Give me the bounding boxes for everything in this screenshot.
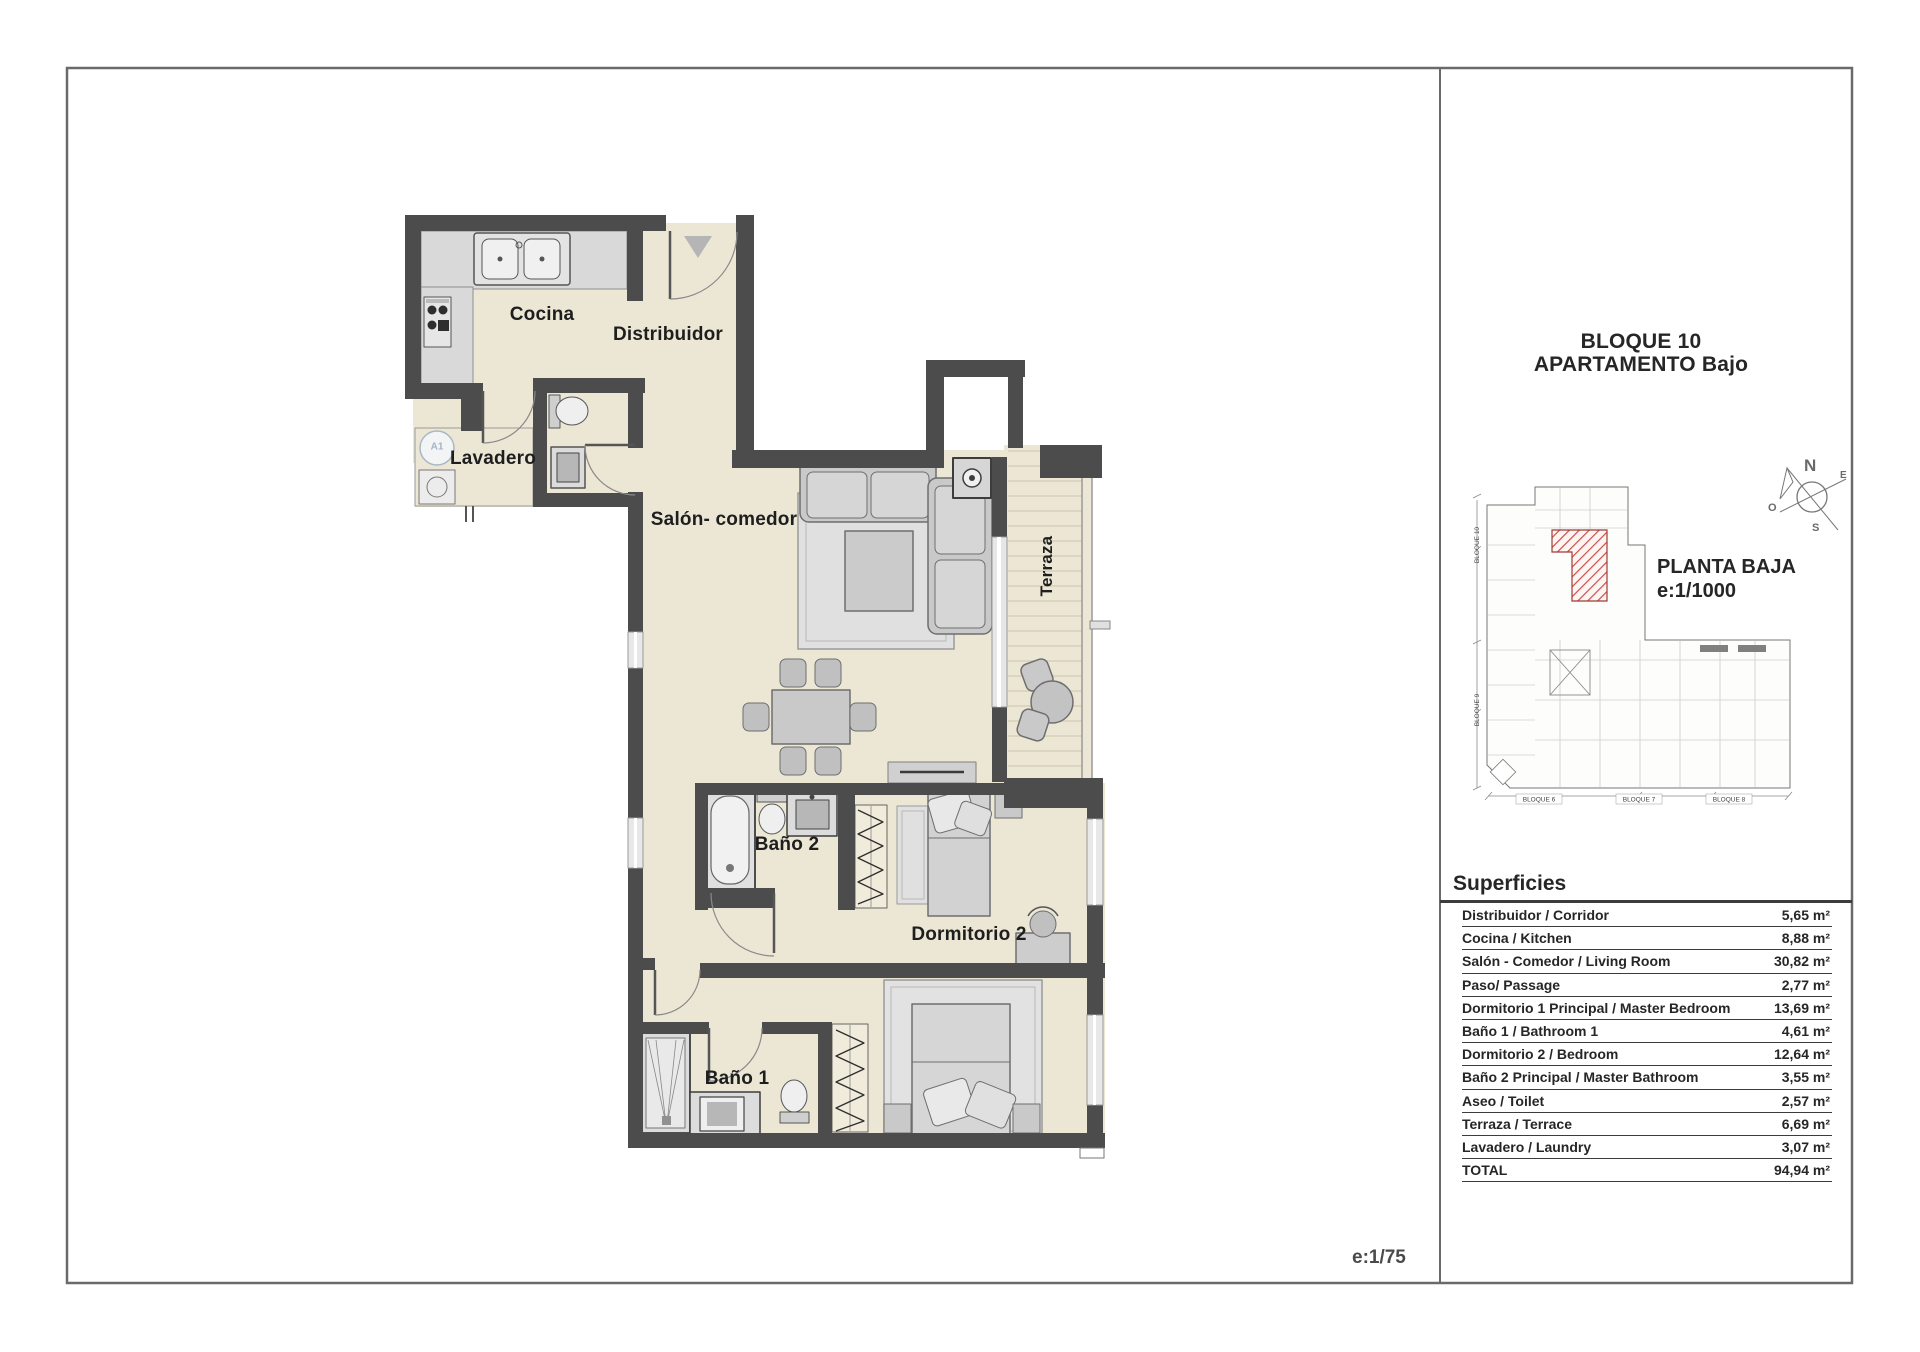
table-row: Distribuidor / Corridor5,65 m² bbox=[1462, 904, 1832, 927]
row-name: Dormitorio 2 / Bedroom bbox=[1462, 1046, 1618, 1062]
row-name: Cocina / Kitchen bbox=[1462, 930, 1572, 946]
vanity-icon-bath1 bbox=[690, 1092, 760, 1135]
room-label-distribuidor: Distribuidor bbox=[613, 324, 723, 346]
nightstand-right bbox=[1013, 1104, 1040, 1133]
table-row: Dormitorio 1 Principal / Master Bedroom1… bbox=[1462, 997, 1832, 1020]
floorplan-sheet: BLOQUE 6 BLOQUE 7 BLOQUE 8 BLOQUE 10 BLO… bbox=[0, 0, 1920, 1352]
superficies-heading-rule bbox=[1440, 900, 1852, 903]
table-row: Cocina / Kitchen8,88 m² bbox=[1462, 927, 1832, 950]
row-value: 12,64 m² bbox=[1774, 1046, 1832, 1062]
room-label-dormitorio2: Dormitorio 2 bbox=[911, 924, 1026, 946]
laundry-unit-tag: A1 bbox=[431, 442, 444, 453]
shower-icon bbox=[641, 1033, 690, 1133]
room-label-terraza: Terraza bbox=[1037, 536, 1057, 597]
window-west-1 bbox=[628, 632, 643, 668]
table-row: Terraza / Terrace6,69 m² bbox=[1462, 1113, 1832, 1136]
site-block-label-6: BLOQUE 6 bbox=[1523, 797, 1556, 804]
wardrobe-bedroom1 bbox=[832, 1024, 868, 1132]
site-building-outline bbox=[1487, 487, 1790, 788]
bedroom2-rug bbox=[897, 806, 929, 904]
double-bed-icon bbox=[912, 1004, 1017, 1134]
row-value: 94,94 m² bbox=[1774, 1162, 1832, 1178]
site-plan-name: PLANTA BAJA bbox=[1657, 556, 1796, 579]
row-name: Baño 1 / Bathroom 1 bbox=[1462, 1023, 1598, 1039]
toilet-icon-bath2 bbox=[757, 792, 787, 834]
bathtub-icon bbox=[705, 789, 755, 891]
panel-title-line2: APARTAMENTO Bajo bbox=[1534, 353, 1748, 377]
site-bar-1 bbox=[1700, 645, 1728, 652]
nightstand-left bbox=[884, 1104, 911, 1133]
terrace-sliding-door bbox=[992, 537, 1007, 707]
site-block-label-9: BLOQUE 9 bbox=[1474, 693, 1481, 726]
table-row-total: TOTAL94,94 m² bbox=[1462, 1159, 1832, 1182]
superficies-heading: Superficies bbox=[1453, 872, 1566, 896]
row-value: 3,55 m² bbox=[1782, 1069, 1832, 1085]
table-row: Aseo / Toilet2,57 m² bbox=[1462, 1090, 1832, 1113]
table-row: Dormitorio 2 / Bedroom12,64 m² bbox=[1462, 1043, 1832, 1066]
row-value: 6,69 m² bbox=[1782, 1116, 1832, 1132]
room-label-bano1: Baño 1 bbox=[705, 1068, 770, 1090]
fireplace-icon bbox=[953, 458, 991, 498]
site-block-label-10: BLOQUE 10 bbox=[1474, 527, 1481, 564]
row-value: 5,65 m² bbox=[1782, 907, 1832, 923]
kitchen-sink-icon bbox=[474, 233, 570, 285]
threshold-mark bbox=[1080, 1148, 1104, 1158]
toilet-icon-bath1 bbox=[780, 1080, 809, 1123]
compass-north-label: N bbox=[1804, 456, 1816, 476]
table-row: Salón - Comedor / Living Room30,82 m² bbox=[1462, 950, 1832, 973]
compass-west-label: O bbox=[1768, 502, 1777, 514]
compass-east-label: E bbox=[1840, 470, 1847, 481]
table-row: Lavadero / Laundry3,07 m² bbox=[1462, 1136, 1832, 1159]
superficies-table: Distribuidor / Corridor5,65 m² Cocina / … bbox=[1462, 904, 1832, 1182]
row-name: Terraza / Terrace bbox=[1462, 1116, 1572, 1132]
table-row: Baño 2 Principal / Master Bathroom3,55 m… bbox=[1462, 1066, 1832, 1089]
panel-title-line1: BLOQUE 10 bbox=[1581, 330, 1702, 354]
row-value: 8,88 m² bbox=[1782, 930, 1832, 946]
window-west-2 bbox=[628, 818, 643, 868]
table-row: Paso/ Passage2,77 m² bbox=[1462, 974, 1832, 997]
room-label-lavadero: Lavadero bbox=[450, 448, 536, 470]
site-block-label-8: BLOQUE 8 bbox=[1713, 797, 1746, 804]
row-value: 2,77 m² bbox=[1782, 977, 1832, 993]
site-plan: BLOQUE 6 BLOQUE 7 BLOQUE 8 BLOQUE 10 BLO… bbox=[1473, 487, 1792, 804]
single-bed-icon bbox=[927, 789, 993, 916]
room-label-bano2: Baño 2 bbox=[755, 834, 820, 856]
row-name: Lavadero / Laundry bbox=[1462, 1139, 1591, 1155]
site-block-label-7: BLOQUE 7 bbox=[1623, 797, 1656, 804]
row-name: Paso/ Passage bbox=[1462, 977, 1560, 993]
row-name: Baño 2 Principal / Master Bathroom bbox=[1462, 1069, 1699, 1085]
row-value: 2,57 m² bbox=[1782, 1093, 1832, 1109]
sink-icon-bath2 bbox=[787, 792, 837, 836]
window-east-bedroom1 bbox=[1087, 1015, 1103, 1105]
site-plan-scale: e:1/1000 bbox=[1657, 580, 1736, 603]
row-name: TOTAL bbox=[1462, 1162, 1507, 1178]
window-east-bedroom2 bbox=[1087, 819, 1103, 905]
table-row: Baño 1 / Bathroom 14,61 m² bbox=[1462, 1020, 1832, 1043]
row-name: Aseo / Toilet bbox=[1462, 1093, 1544, 1109]
main-scale-label: e:1/75 bbox=[1352, 1247, 1406, 1269]
row-value: 13,69 m² bbox=[1774, 1000, 1832, 1016]
compass-icon bbox=[1780, 468, 1846, 530]
row-value: 3,07 m² bbox=[1782, 1139, 1832, 1155]
site-bar-2 bbox=[1738, 645, 1766, 652]
wardrobe-bedroom2 bbox=[855, 805, 887, 908]
row-value: 30,82 m² bbox=[1774, 953, 1832, 969]
stove-icon bbox=[424, 297, 451, 347]
row-name: Dormitorio 1 Principal / Master Bedroom bbox=[1462, 1000, 1730, 1016]
room-label-cocina: Cocina bbox=[510, 304, 575, 326]
row-name: Distribuidor / Corridor bbox=[1462, 907, 1609, 923]
sideboard-icon bbox=[888, 762, 976, 783]
room-label-salon-comedor: Salón- comedor bbox=[651, 509, 797, 531]
compass-south-label: S bbox=[1812, 522, 1819, 534]
row-name: Salón - Comedor / Living Room bbox=[1462, 953, 1670, 969]
row-value: 4,61 m² bbox=[1782, 1023, 1832, 1039]
coffee-table-icon bbox=[845, 531, 913, 611]
